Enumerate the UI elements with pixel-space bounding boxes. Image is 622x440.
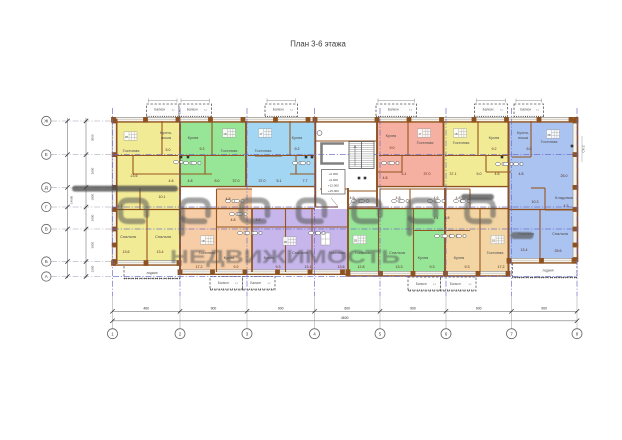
svg-text:5.0: 5.0 [166,148,171,152]
svg-text:1Б: 1Б [454,132,458,136]
svg-text:9.3: 9.3 [430,265,435,269]
svg-text:2000: 2000 [91,214,95,221]
svg-text:1Г: 1Г [259,132,263,136]
svg-text:лоджия: лоджия [146,271,157,275]
svg-text:4.8: 4.8 [226,197,231,201]
svg-text:Кладовая: Кладовая [555,195,573,200]
svg-text:4.8: 4.8 [456,196,461,200]
svg-text:Кухня: Кухня [489,135,500,140]
svg-text:4.6: 4.6 [350,196,355,200]
svg-text:13.4: 13.4 [521,248,528,252]
svg-text:3Б: 3Б [125,135,129,139]
svg-text:3Б: 3Б [547,133,551,137]
svg-text:Б: Б [45,259,48,264]
svg-text:37.0: 37.0 [424,172,431,176]
svg-text:Кухня: Кухня [454,255,465,260]
svg-text:3000: 3000 [91,242,95,249]
svg-text:Спальня: Спальня [155,234,171,239]
svg-text:Балкон: Балкон [154,108,165,112]
svg-text:1Б: 1Б [223,132,227,136]
svg-text:25.6: 25.6 [555,249,562,253]
svg-text:4.8: 4.8 [383,176,388,180]
svg-text:Балкон: Балкон [416,282,427,286]
svg-text:5.0: 5.0 [527,147,532,151]
svg-text:5.0: 5.0 [215,179,220,183]
svg-text:Кухня: Кухня [292,135,303,140]
svg-text:10.1: 10.1 [159,195,166,199]
svg-text:600: 600 [344,306,350,310]
svg-text:+15.000: +15.000 [328,189,339,193]
svg-text:Е: Е [45,152,48,157]
svg-text:Балкон: Балкон [388,108,399,112]
svg-text:900: 900 [541,306,547,310]
svg-text:Балкон: Балкон [520,108,531,112]
svg-text:1500: 1500 [91,265,95,272]
svg-text:900: 900 [476,306,482,310]
svg-text:10.3: 10.3 [532,200,539,204]
svg-text:Балкон: Балкон [273,108,284,112]
svg-text:9.2: 9.2 [492,147,497,151]
svg-text:Балкон: Балкон [218,281,229,285]
svg-text:Гостиная: Гостиная [417,140,434,145]
svg-text:9.2: 9.2 [295,147,300,151]
svg-text:НЕДВИЖИМОСТЬ: НЕДВИЖИМОСТЬ [170,246,400,267]
svg-text:Гостиная: Гостиная [541,139,558,144]
svg-text:В: В [45,227,48,232]
svg-text:4600: 4600 [341,316,349,320]
svg-text:Гостиная: Гостиная [255,148,272,153]
svg-text:Гостиная: Гостиная [123,148,140,153]
svg-text:460: 460 [143,306,149,310]
svg-text:23.6: 23.6 [131,174,138,178]
svg-text:4.3: 4.3 [564,204,569,208]
svg-text:4.8: 4.8 [445,216,450,220]
svg-text:1800: 1800 [91,194,95,201]
svg-text:9.0: 9.0 [390,146,395,150]
svg-text:1Б: 1Б [492,238,496,242]
svg-text:Гостиная: Гостиная [453,140,470,145]
svg-text:4.8: 4.8 [519,172,524,176]
svg-text:4.6: 4.6 [495,172,500,176]
svg-text:9.2: 9.2 [200,147,205,151]
svg-text:+12.000: +12.000 [328,183,339,187]
svg-text:Д: Д [45,185,48,190]
svg-text:14600: 14600 [70,195,74,204]
svg-text:37.1: 37.1 [450,172,457,176]
svg-text:Балкон: Балкон [187,108,198,112]
svg-text:37.0: 37.0 [259,179,266,183]
svg-text:3000: 3000 [91,134,95,141]
svg-text:25.0: 25.0 [561,174,568,178]
svg-text:ниша: ниша [518,135,529,140]
svg-text:Балкон: Балкон [450,282,461,286]
svg-text:ниша: ниша [161,135,172,140]
svg-text:А: А [45,274,48,279]
svg-text:4.8: 4.8 [396,196,401,200]
svg-text:4.8: 4.8 [188,179,193,183]
svg-text:Балкон: Балкон [483,108,494,112]
svg-text:Балкон: Балкон [250,281,261,285]
svg-text:900: 900 [410,306,416,310]
svg-text:17.2: 17.2 [498,265,505,269]
svg-text:Кухня: Кухня [418,255,429,260]
svg-text:9.3: 9.3 [465,265,470,269]
svg-text:7.7: 7.7 [303,179,308,183]
svg-text:3000: 3000 [91,167,95,174]
svg-text:13.6: 13.6 [123,250,130,254]
svg-text:+6.000: +6.000 [329,172,339,176]
svg-text:Гостиная: Гостиная [487,250,504,255]
svg-text:5.1: 5.1 [277,179,282,183]
svg-text:1В: 1В [201,239,205,243]
svg-text:Спальня: Спальня [120,234,136,239]
svg-text:4.8: 4.8 [231,218,236,222]
svg-text:13.4: 13.4 [157,250,164,254]
svg-text:+9.000: +9.000 [329,178,339,182]
svg-text:900: 900 [211,306,217,310]
svg-text:Гостиная: Гостиная [221,148,238,153]
svg-text:4.8: 4.8 [169,179,174,183]
svg-text:План 3-6 этажа: План 3-6 этажа [290,40,346,49]
svg-text:2Б: 2Б [354,238,358,242]
svg-text:5.0: 5.0 [477,172,482,176]
svg-text:1Г: 1Г [418,132,422,136]
svg-text:37.0: 37.0 [233,179,240,183]
svg-text:лоджия: лоджия [542,269,553,273]
svg-text:900: 900 [278,306,284,310]
svg-text:2Б: 2Б [284,240,288,244]
svg-text:Кухня: Кухня [386,133,397,138]
svg-text:Кухня: Кухня [188,135,199,140]
svg-text:5.1: 5.1 [402,172,407,176]
svg-text:Спальня: Спальня [552,231,568,236]
